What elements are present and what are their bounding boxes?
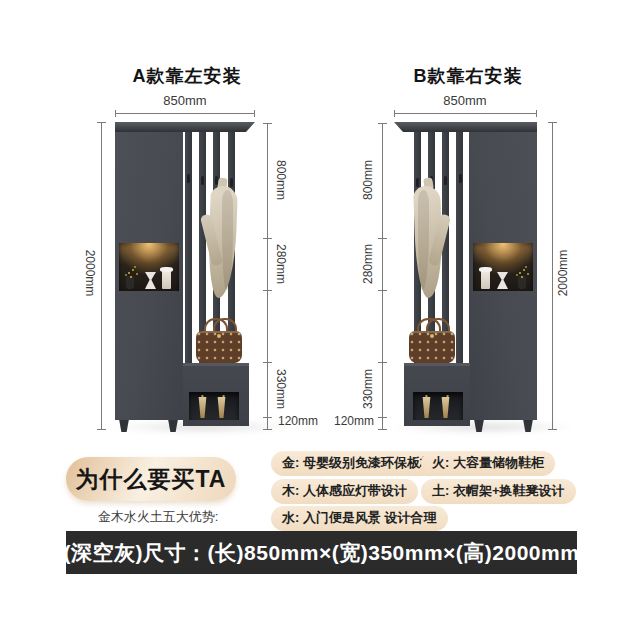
model-a-top-shelf [115,122,255,132]
plant-vase [126,276,134,289]
decor-cylinder-vase [162,270,171,289]
dim-tick [254,110,255,117]
dim-tick [378,362,387,363]
coat-hook [187,174,190,183]
model-a-shoe-compartment [189,392,239,420]
feature-pill-earth: 土: 衣帽架+换鞋凳设计 [421,479,576,504]
model-a-width-dim-line [115,113,255,114]
model-b-seg-800-label: 800mm [361,160,375,200]
model-b-height-dim-line [552,122,553,430]
dim-tick [97,122,106,123]
handbag [408,316,456,363]
size-footer-bar: (深空灰)尺寸：(长)850mm×(宽)350mm×(高)2000mm [66,531,577,574]
plant-flowers [519,272,521,274]
decor-cylinder-vase [481,270,490,289]
model-a-title: A款靠左安装 [133,64,242,88]
high-heel-shoe [440,397,451,418]
five-advantages-subtitle: 金木水火土五大优势: [98,508,219,526]
model-b-height-label: 2000mm [556,250,570,297]
hanging-coat [206,176,244,304]
dim-tick [536,110,537,117]
dim-tick [263,290,272,291]
decor-vase-top [160,267,173,272]
model-b-seg-120-label: 120mm [334,414,374,428]
decor-vase-top [479,267,492,272]
high-heel-shoe [197,397,208,418]
handbag [196,316,244,363]
model-b-display-niche [473,243,533,291]
feature-pill-metal: 金: 母婴级别免漆环保板材 [271,451,444,476]
model-a-segment-dim-line [267,123,268,430]
model-b-seg-280-label: 280mm [361,244,375,284]
plant-vase [518,276,526,289]
high-heel-shoe [216,397,227,418]
dim-tick [378,417,387,418]
high-heel-shoe [421,397,432,418]
dim-tick [263,123,272,124]
product-infographic: A款靠左安装 850mm 2000mm [0,0,640,640]
feature-pill-fire: 火: 大容量储物鞋柜 [421,451,555,476]
dim-tick [378,123,387,124]
model-a-seg-800-label: 800mm [274,160,288,200]
model-a-seg-280-label: 280mm [274,244,288,284]
dim-tick [394,110,395,117]
model-a-height-dim-line [101,122,102,430]
dim-tick [115,110,116,117]
model-b-seg-330-label: 330mm [361,369,375,409]
feature-pill-wood: 木: 人体感应灯带设计 [271,479,418,504]
feature-pill-water: 水: 入门便是风景 设计合理 [271,506,448,531]
slat [185,132,192,363]
why-buy-badge: 为什么要买TA [66,457,236,501]
model-b-top-shelf [394,122,537,132]
why-buy-badge-text: 为什么要买TA [76,464,227,495]
dim-tick [378,429,387,430]
model-b-shoe-compartment [413,392,463,420]
model-a-display-niche [119,243,179,291]
dim-tick [263,429,272,430]
dim-tick [548,122,557,123]
coat-hook [201,176,204,185]
dim-tick [263,362,272,363]
decor-goblet-vase [497,272,508,289]
model-a-seg-330-label: 330mm [274,369,288,409]
dim-tick [97,429,106,430]
model-a-seg-120-label: 120mm [278,414,318,428]
model-a-width-label: 850mm [163,93,206,108]
model-b-title: B款靠右安装 [414,64,523,88]
hanging-coat [408,176,446,304]
model-b-width-dim-line [394,113,537,114]
dim-tick [263,238,272,239]
decor-goblet-vase [145,272,156,289]
size-footer-text: (深空灰)尺寸：(长)850mm×(宽)350mm×(高)2000mm [64,539,580,567]
slat [456,132,463,363]
dim-tick [263,417,272,418]
model-a-height-label: 2000mm [83,250,97,297]
dim-tick [378,238,387,239]
model-b-width-label: 850mm [443,93,486,108]
model-b-segment-dim-line [382,123,383,430]
dim-tick [378,290,387,291]
coat-hook [459,174,462,183]
plant-flowers [128,272,130,274]
